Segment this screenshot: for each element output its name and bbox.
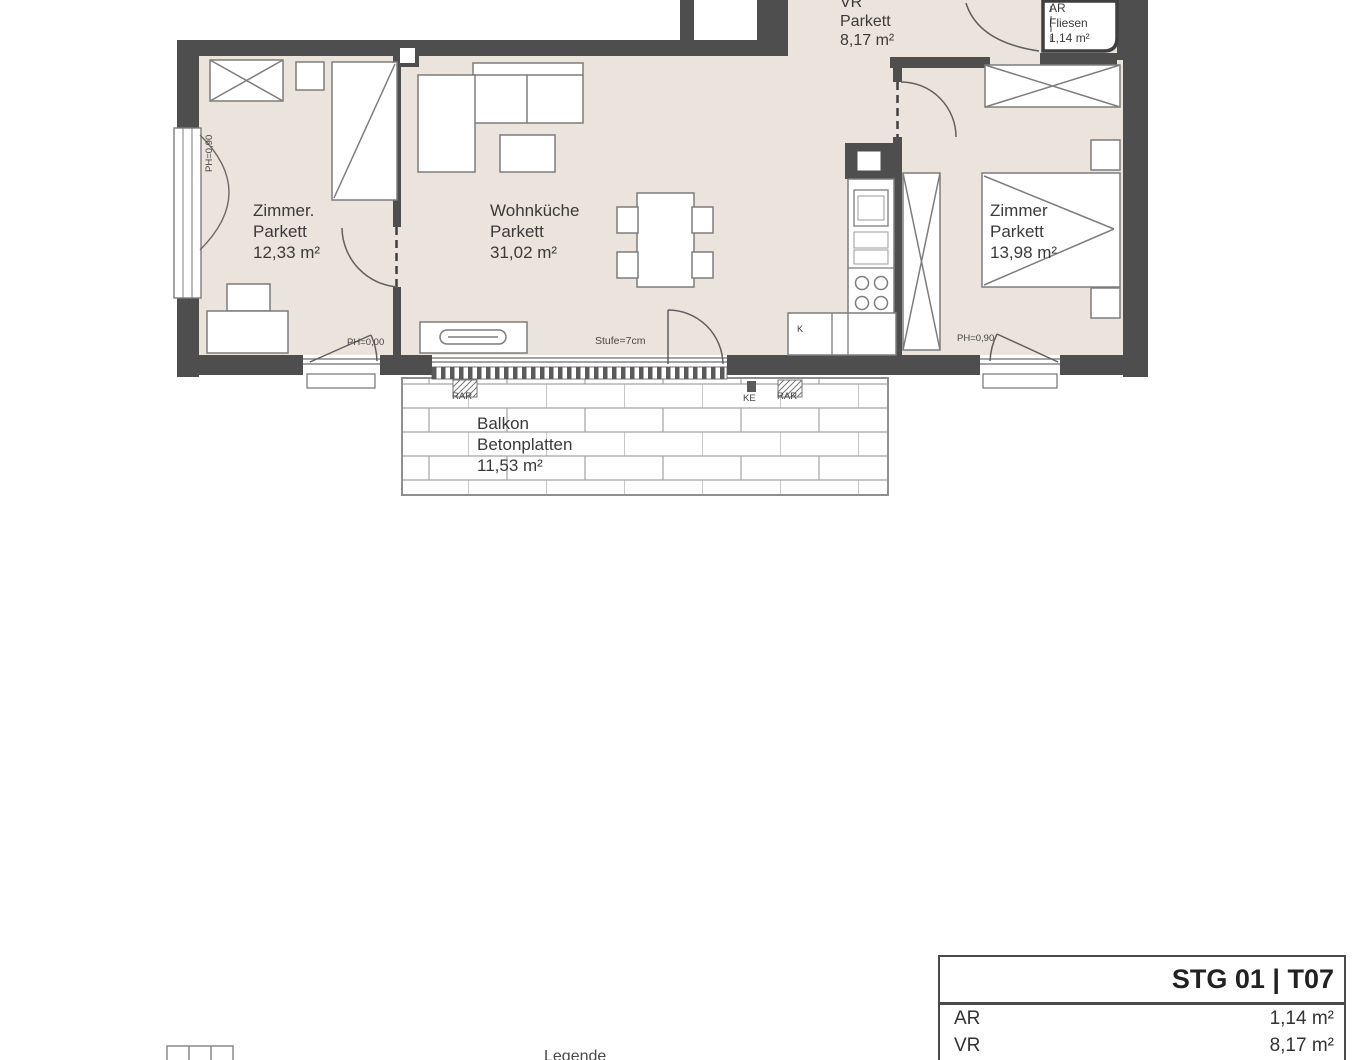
room-label-wohnkueche: Wohnküche Parkett 31,02 m²	[490, 200, 579, 263]
room-label-zimmer-right: Zimmer Parkett 13,98 m²	[990, 200, 1057, 263]
room-label-balkon: Balkon Betonplatten 11,53 m²	[477, 413, 572, 476]
marker-label-rar-left: RAR	[452, 391, 472, 402]
ph-label-left-window: PH=0,00	[347, 337, 384, 348]
balcony-threshold	[432, 367, 727, 379]
table-row-vr: VR 8,17 m²	[940, 1032, 1344, 1059]
kitchen-cabinet-label: K	[797, 324, 803, 334]
unit-title: STG 01 | T07	[940, 957, 1344, 1005]
row-label: VR	[954, 1035, 980, 1057]
floor-plan-page: Zimmer. Parkett 12,33 m² Wohnküche Parke…	[0, 0, 1370, 1060]
row-value: 1,14 m²	[1270, 1008, 1334, 1030]
unit-info-table: STG 01 | T07 AR 1,14 m² VR 8,17 m²	[938, 955, 1346, 1060]
room-label-ar: AR Fliesen 1,14 m²	[1049, 1, 1090, 46]
ph-label-left-wall: PH=0,90	[204, 135, 215, 172]
table-row-ar: AR 1,14 m²	[940, 1005, 1344, 1032]
ph-label-right-window: PH=0,90	[957, 333, 994, 344]
marker-label-rar-right: RAR	[777, 391, 797, 402]
step-label: Stufe=7cm	[595, 335, 646, 347]
legend-title: Legende	[544, 1048, 606, 1060]
row-label: AR	[954, 1008, 980, 1030]
legend-grid-icon	[167, 1046, 233, 1060]
marker-label-ke: KE	[743, 393, 756, 404]
room-label-zimmer-left: Zimmer. Parkett 12,33 m²	[253, 200, 320, 263]
row-value: 8,17 m²	[1270, 1035, 1334, 1057]
pillar	[398, 46, 417, 65]
room-label-vr: VR Parkett 8,17 m²	[840, 0, 894, 50]
